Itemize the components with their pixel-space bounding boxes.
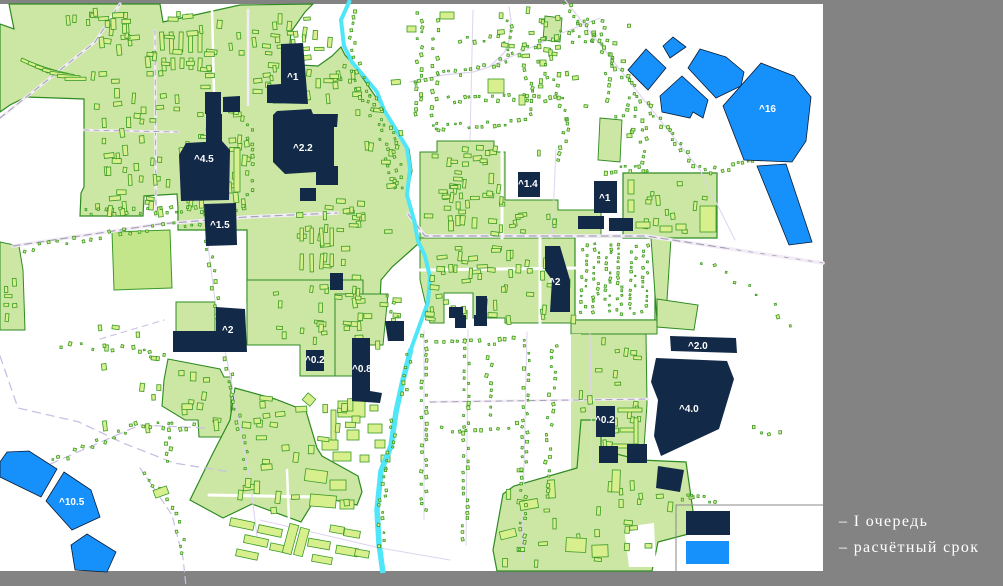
svg-text:^4.5: ^4.5 bbox=[194, 154, 214, 165]
svg-text:^0.2: ^0.2 bbox=[595, 415, 615, 426]
svg-text:^10.5: ^10.5 bbox=[59, 497, 85, 508]
svg-text:^1: ^1 bbox=[599, 193, 611, 204]
svg-text:^0.2: ^0.2 bbox=[305, 355, 325, 366]
svg-text:^1.4: ^1.4 bbox=[518, 179, 538, 190]
svg-text:– I очередь: – I очередь bbox=[838, 513, 928, 530]
svg-text:^16: ^16 bbox=[759, 104, 776, 115]
svg-text:^2: ^2 bbox=[549, 277, 561, 288]
svg-text:^2.2: ^2.2 bbox=[293, 143, 313, 154]
svg-text:^1.5: ^1.5 bbox=[210, 220, 230, 231]
svg-text:^1: ^1 bbox=[287, 72, 299, 83]
svg-text:^4.0: ^4.0 bbox=[679, 404, 699, 415]
svg-text:^2: ^2 bbox=[222, 325, 234, 336]
svg-text:^2.0: ^2.0 bbox=[688, 341, 708, 352]
svg-text:^0.8: ^0.8 bbox=[352, 364, 372, 375]
svg-text:– расчётный срок: – расчётный срок bbox=[838, 539, 979, 556]
